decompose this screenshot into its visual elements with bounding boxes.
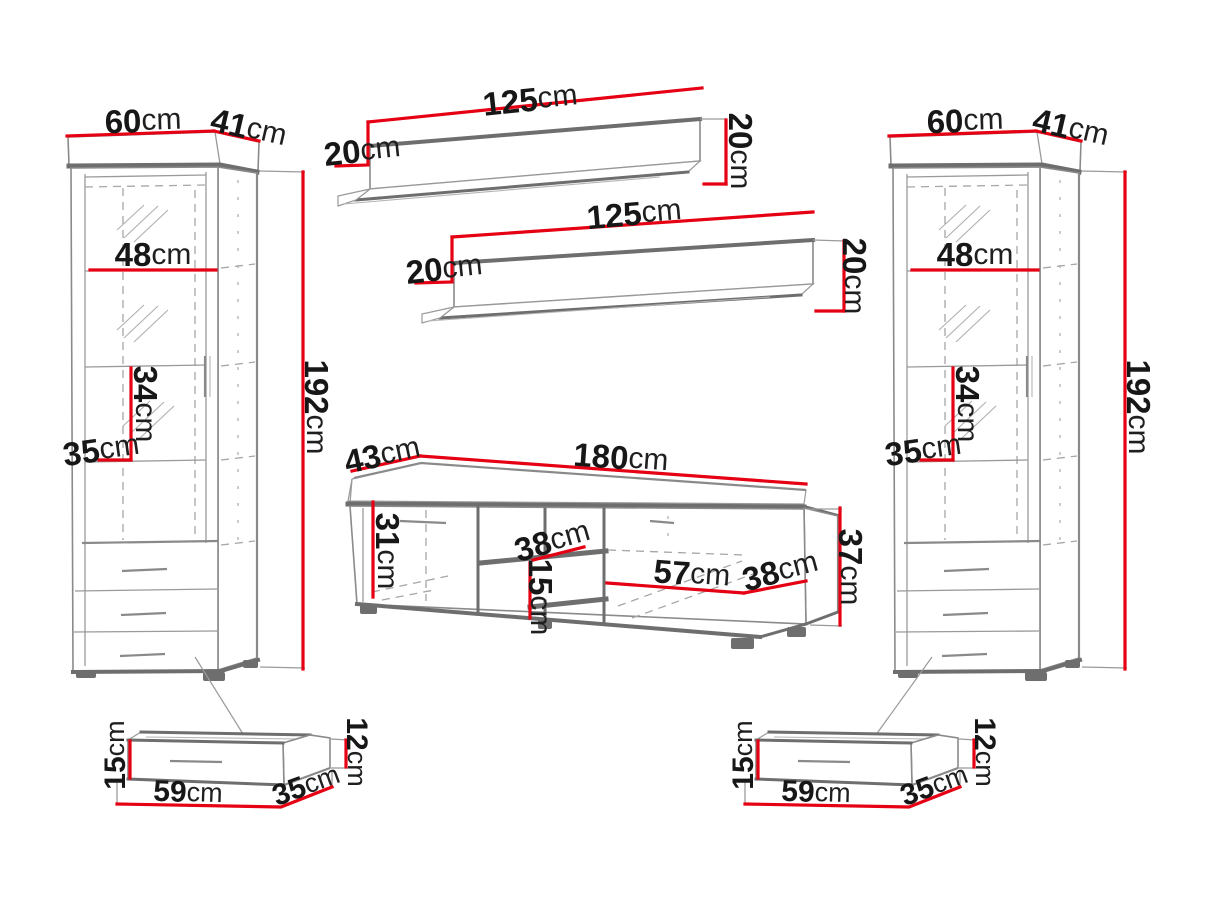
- dim-left-drawer-front-height: 15cm: [99, 720, 132, 789]
- dim-tv-stand-inner-height: 31cm: [370, 513, 407, 590]
- dim-left-cabinet-inner-width: 48cm: [115, 236, 192, 273]
- dim-top-shelf-length: 125cm: [481, 76, 579, 123]
- dim-left-cabinet-width: 60cm: [104, 100, 182, 140]
- dim-left-drawer-side-height: 12cm: [341, 717, 374, 786]
- dim-right-drawer-side-height: 12cm: [969, 717, 1002, 786]
- dim-left-cabinet-height: 192cm: [299, 359, 336, 454]
- dim-middle-shelf-height: 20cm: [837, 238, 874, 315]
- dim-left-drawer-width: 59cm: [153, 774, 223, 809]
- dim-tv-stand-height: 37cm: [833, 529, 870, 606]
- dim-tv-stand-niche-height: 15cm: [523, 559, 560, 636]
- dim-right-cabinet-inner-width: 48cm: [937, 236, 1014, 273]
- dim-tv-stand-compartment-width: 57cm: [652, 552, 731, 594]
- dim-right-cabinet-width: 60cm: [926, 100, 1004, 140]
- dim-right-cabinet-height: 192cm: [1121, 359, 1158, 454]
- dim-right-drawer-width: 59cm: [781, 774, 851, 809]
- furniture-dimension-diagram: 60cm 41cm 48cm 34cm 35cm 192cm 60cm 41cm…: [0, 0, 1214, 911]
- dim-middle-shelf-length: 125cm: [585, 190, 683, 235]
- tv-stand-drawing: [348, 456, 842, 649]
- diagram-canvas: 60cm 41cm 48cm 34cm 35cm 192cm 60cm 41cm…: [0, 0, 1214, 911]
- dim-tv-stand-width: 180cm: [572, 435, 669, 479]
- dim-top-shelf-height: 20cm: [723, 113, 760, 190]
- dim-right-drawer-front-height: 15cm: [727, 720, 760, 789]
